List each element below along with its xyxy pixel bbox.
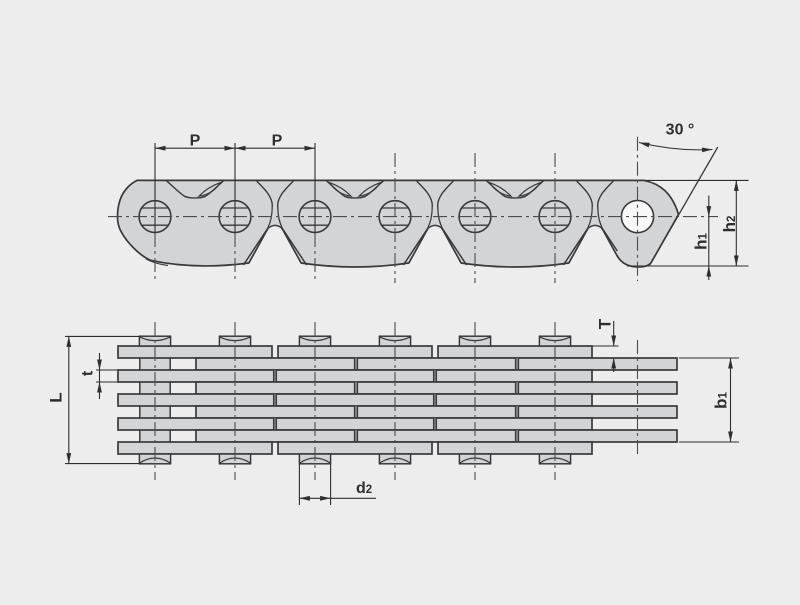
svg-text:L: L [46, 392, 65, 402]
svg-text:t: t [80, 370, 97, 376]
svg-text:30 °: 30 ° [666, 122, 695, 139]
svg-text:P: P [272, 133, 283, 150]
svg-text:P: P [190, 133, 201, 150]
svg-text:T: T [596, 318, 615, 329]
